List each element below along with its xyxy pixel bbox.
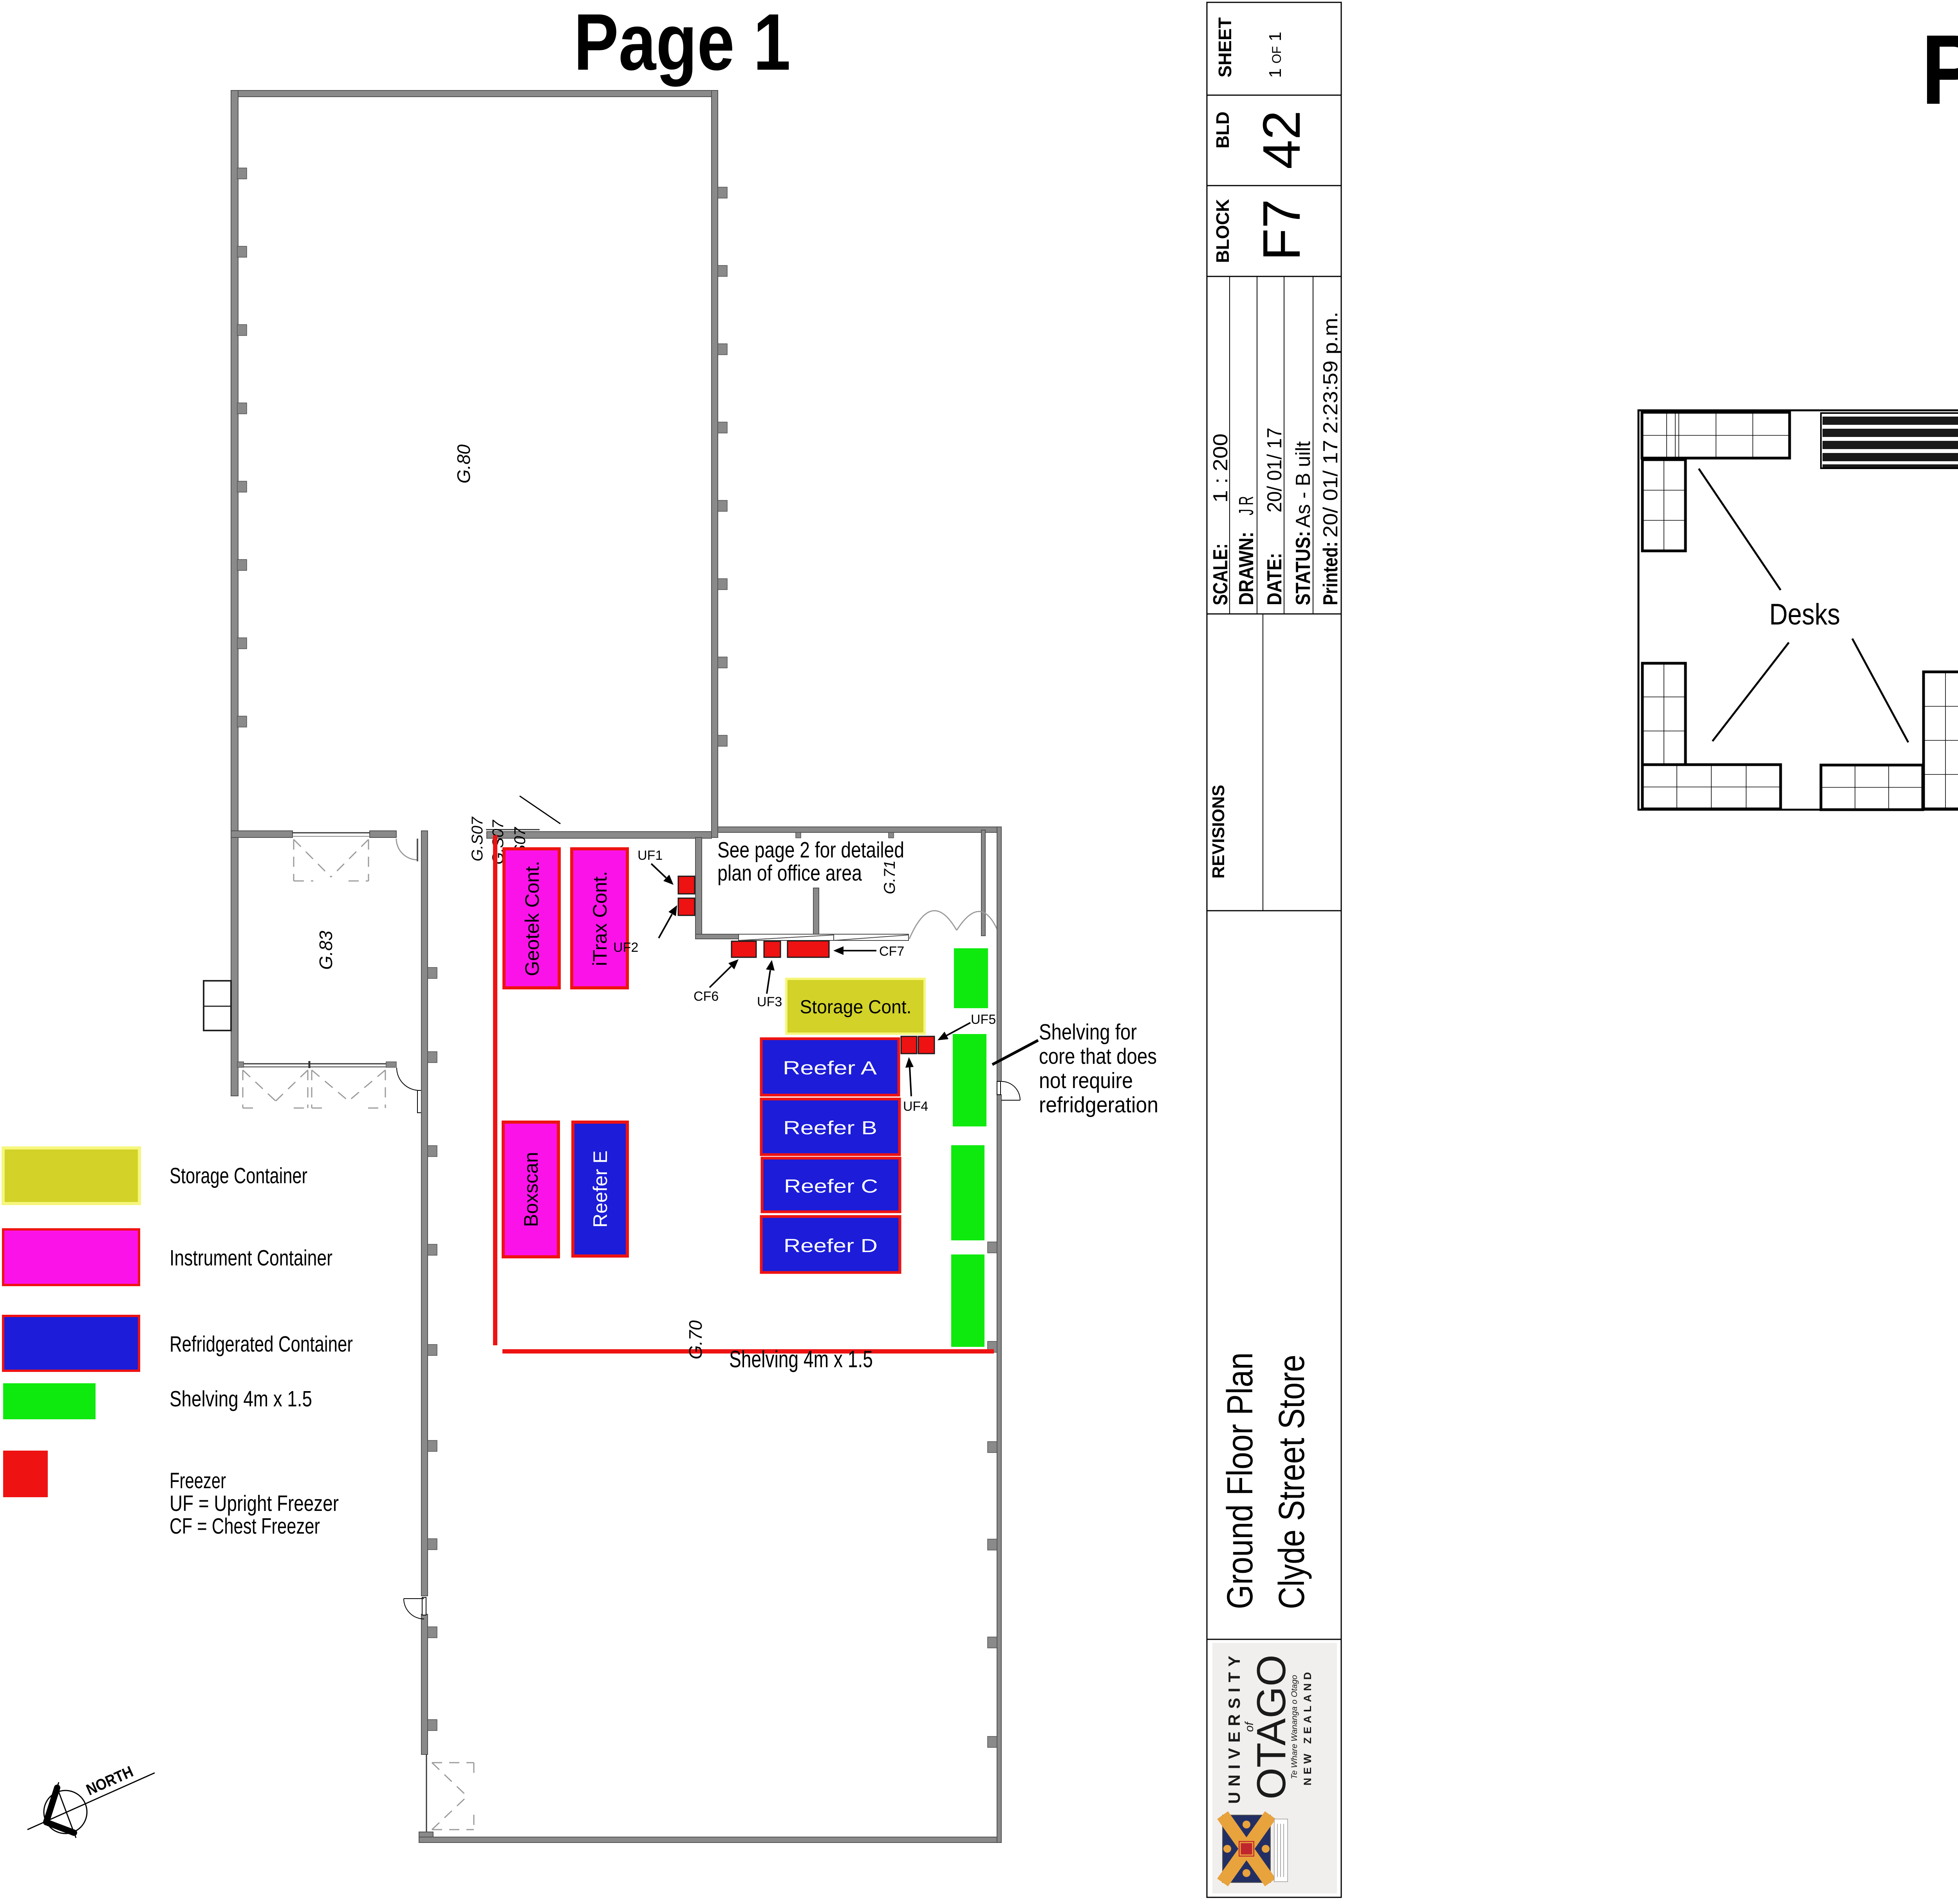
svg-text:Page 1: Page 1 [574, 0, 791, 87]
svg-text:Printed:: Printed: [1319, 541, 1342, 605]
svg-text:Reefer A: Reefer A [783, 1058, 877, 1079]
svg-text:Freezer: Freezer [170, 1468, 226, 1493]
svg-text:UNIVERSITY: UNIVERSITY [1225, 1650, 1243, 1804]
svg-text:plan of office area: plan of office area [717, 861, 862, 886]
svg-text:Clyde Street Store: Clyde Street Store [1271, 1355, 1312, 1609]
svg-text:Reefer C: Reefer C [784, 1176, 878, 1197]
svg-text:OTAGO: OTAGO [1249, 1655, 1294, 1799]
svg-text:BLOCK: BLOCK [1212, 199, 1233, 263]
svg-text:Refridgerated Container: Refridgerated Container [170, 1332, 353, 1357]
svg-text:CF6: CF6 [694, 989, 719, 1004]
svg-text:Shelving 4m x 1.5: Shelving 4m x 1.5 [729, 1346, 873, 1372]
svg-text:Geotek Cont.: Geotek Cont. [521, 861, 543, 976]
svg-text:UF = Upright Freezer: UF = Upright Freezer [170, 1491, 339, 1516]
svg-text:42: 42 [1252, 110, 1311, 169]
svg-text:Storage Cont.: Storage Cont. [800, 997, 912, 1018]
svg-text:Storage Container: Storage Container [170, 1163, 307, 1188]
svg-text:20/ 01/ 17: 20/ 01/ 17 [1263, 428, 1286, 513]
svg-text:SHEET: SHEET [1215, 17, 1235, 77]
svg-text:DRAWN:: DRAWN: [1235, 532, 1258, 605]
svg-text:core that does: core that does [1039, 1044, 1157, 1069]
svg-text:UF2: UF2 [613, 940, 638, 955]
svg-text:REVISIONS: REVISIONS [1209, 785, 1228, 879]
svg-text:F7: F7 [1252, 199, 1311, 261]
svg-text:refridgeration: refridgeration [1039, 1092, 1158, 1117]
svg-text:BLD: BLD [1212, 112, 1233, 149]
svg-text:G.S07: G.S07 [469, 816, 486, 861]
svg-text:Page 2: Page 2 [1921, 14, 1958, 125]
svg-text:Shelving 4m x 1.5: Shelving 4m x 1.5 [170, 1386, 312, 1411]
svg-text:SCALE:: SCALE: [1209, 543, 1232, 605]
svg-text:Desks: Desks [1769, 598, 1840, 631]
svg-text:Shelving for: Shelving for [1039, 1020, 1137, 1045]
svg-text:J R: J R [1235, 496, 1258, 515]
svg-text:Instrument Container: Instrument Container [170, 1245, 332, 1271]
svg-text:iTrax Cont.: iTrax Cont. [589, 871, 611, 966]
svg-text:UF3: UF3 [757, 994, 782, 1009]
svg-text:Reefer B: Reefer B [783, 1118, 877, 1139]
svg-text:UF4: UF4 [903, 1099, 928, 1114]
svg-text:CF = Chest Freezer: CF = Chest Freezer [170, 1514, 320, 1539]
svg-text:As - B uilt: As - B uilt [1292, 441, 1315, 528]
svg-text:1 : 200: 1 : 200 [1209, 433, 1232, 503]
svg-text:UF1: UF1 [638, 848, 663, 863]
svg-text:DATE:: DATE: [1263, 553, 1286, 605]
svg-text:UF5: UF5 [971, 1012, 996, 1027]
svg-text:G.83: G.83 [316, 931, 336, 970]
svg-text:G.80: G.80 [453, 444, 474, 484]
svg-text:not require: not require [1039, 1068, 1133, 1093]
svg-text:Reefer E: Reefer E [589, 1150, 611, 1227]
svg-text:Boxscan: Boxscan [520, 1152, 542, 1227]
svg-text:G.70: G.70 [685, 1320, 706, 1359]
svg-text:See page 2 for detailed: See page 2 for detailed [717, 837, 904, 863]
svg-text:Ground Floor Plan: Ground Floor Plan [1219, 1352, 1260, 1609]
svg-text:NEW ZEALAND: NEW ZEALAND [1302, 1669, 1313, 1785]
svg-text:CF7: CF7 [879, 944, 904, 959]
svg-text:20/ 01/ 17 2:23:59 p.m.: 20/ 01/ 17 2:23:59 p.m. [1319, 312, 1342, 538]
svg-text:Te Whare Wananga o Otago: Te Whare Wananga o Otago [1290, 1675, 1299, 1779]
svg-text:G.71: G.71 [881, 860, 898, 894]
svg-text:Reefer D: Reefer D [784, 1236, 878, 1256]
svg-text:STATUS:: STATUS: [1292, 531, 1315, 605]
